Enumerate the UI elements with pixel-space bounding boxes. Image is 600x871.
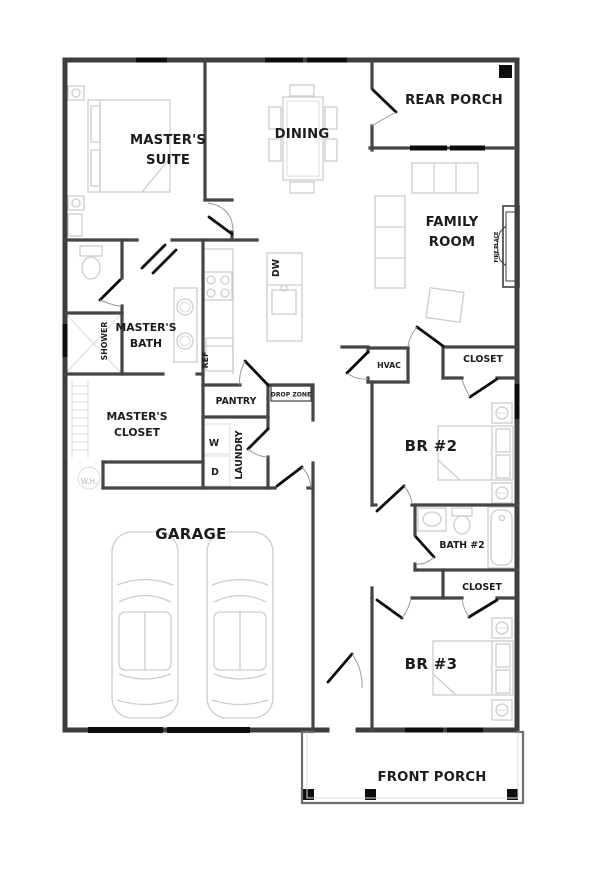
door-arc — [142, 245, 176, 273]
door-arc — [462, 379, 497, 397]
room-label-master-suite: MASTER'S — [130, 133, 206, 148]
room-label-master-suite: SUITE — [146, 153, 190, 168]
room-label-master-bath: MASTER'S — [115, 321, 176, 334]
room-label-dining: DINING — [275, 127, 330, 142]
door-arc — [100, 280, 121, 306]
bathtub-icon — [488, 507, 515, 568]
sink-icon — [418, 508, 446, 531]
label-water-heater: W.H. — [81, 477, 98, 486]
room-label-laundry: LAUNDRY — [234, 430, 245, 480]
room-label-pantry: PANTRY — [216, 396, 257, 407]
room-label-closet-br2: CLOSET — [463, 354, 503, 365]
toilet-icon — [80, 246, 102, 279]
room-label-br3: BR #3 — [405, 655, 458, 673]
room-label-front-porch: FRONT PORCH — [378, 770, 487, 785]
room-label-shower: SHOWER — [100, 322, 109, 361]
car-icon — [207, 532, 273, 718]
front-porch-outline — [302, 732, 523, 803]
room-label-br2: BR #2 — [405, 437, 458, 455]
porch-columns — [303, 65, 518, 800]
door-arc — [372, 90, 396, 126]
door-arc — [248, 429, 268, 457]
room-label-master-closet: CLOSET — [114, 426, 161, 439]
door-arc — [408, 327, 443, 347]
shower-glass-icon — [65, 313, 122, 374]
door-arc — [328, 654, 362, 688]
refrigerator-icon — [206, 338, 233, 371]
room-label-closet-br3: CLOSET — [462, 582, 502, 593]
door-arc — [462, 599, 497, 617]
door-arc — [377, 486, 412, 511]
label-fireplace: FIRE PLACE — [494, 232, 500, 263]
label-refrigerator: REF — [201, 352, 210, 369]
room-label-family-room: ROOM — [429, 235, 476, 250]
room-label-drop-zone: DROP ZONE — [271, 392, 311, 399]
furniture-layer — [65, 85, 519, 720]
door-arc — [347, 352, 368, 379]
room-label-hvac: HVAC — [377, 361, 401, 370]
room-label-master-bath: BATH — [130, 337, 162, 350]
column-icon — [499, 65, 512, 78]
room-label-master-closet: MASTER'S — [106, 410, 167, 423]
room-label-bath2: BATH #2 — [439, 540, 484, 551]
door-arc — [377, 598, 411, 618]
room-label-garage: GARAGE — [155, 525, 226, 543]
label-washer: W — [209, 438, 219, 449]
room-label-rear-porch: REAR PORCH — [405, 93, 503, 108]
car-icon — [112, 532, 178, 718]
door-arc — [416, 537, 434, 564]
floor-plan: MASTER'S SUITE DINING REAR PORCH FAMILY … — [0, 0, 600, 871]
label-dishwasher: DW — [271, 259, 282, 277]
floor-plan-drawing: MASTER'S SUITE DINING REAR PORCH FAMILY … — [0, 0, 600, 871]
door-arc — [208, 203, 233, 234]
vanity-sink-icon — [174, 288, 197, 362]
door-arc — [240, 361, 268, 385]
label-dryer: D — [211, 467, 219, 478]
door-arc — [277, 467, 311, 488]
toilet-icon — [452, 508, 472, 534]
closet-rod-icon — [72, 380, 88, 458]
room-label-family-room: FAMILY — [426, 215, 479, 230]
